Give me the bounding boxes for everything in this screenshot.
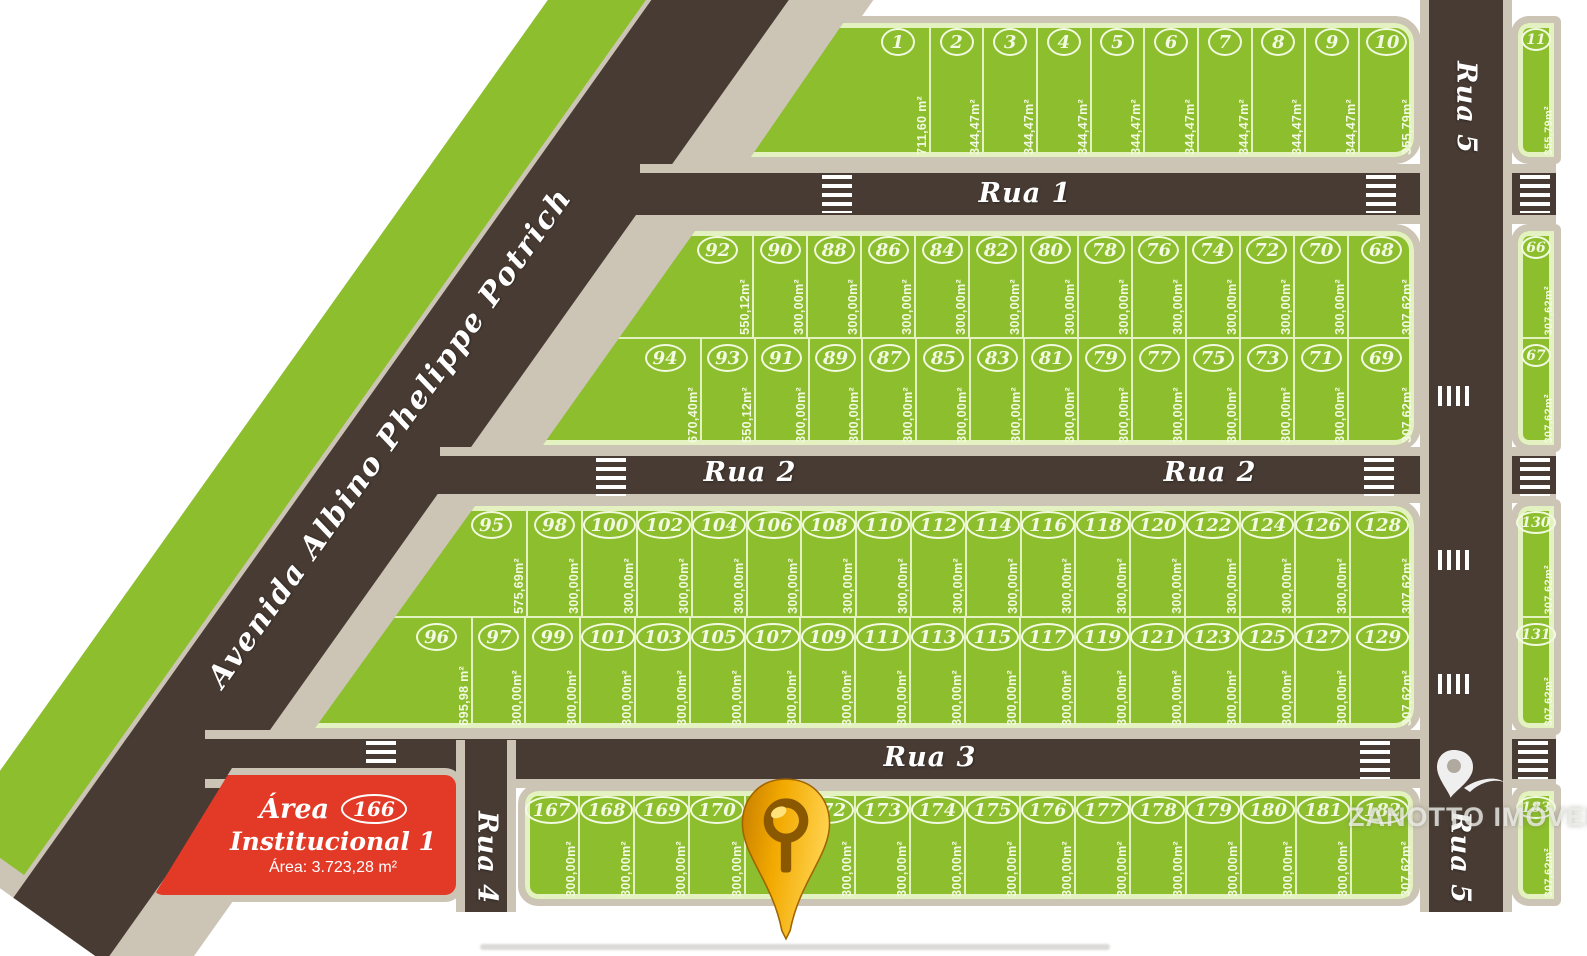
lot-7[interactable]: 7344,47m²	[1199, 23, 1253, 157]
lot-number-badge: 84	[922, 236, 963, 264]
lot-105[interactable]: 105300,00m²	[691, 618, 746, 728]
lot-area-label: 300,00m²	[1008, 279, 1022, 335]
lot-area-label: 300,00m²	[1063, 279, 1077, 335]
lot-number-badge: 77	[1139, 344, 1180, 372]
lot-number-badge: 128	[1356, 511, 1410, 539]
lot-area-label: 300,00m²	[955, 387, 969, 443]
lot-number-badge: 2	[940, 28, 974, 56]
junction-rua5-rua1	[1429, 173, 1503, 215]
lot-number-badge: 169	[635, 796, 689, 824]
lot-number-badge: 112	[912, 511, 966, 539]
lot-177[interactable]: 177300,00m²	[1076, 791, 1131, 899]
lot-area-label: 300,00m²	[840, 670, 854, 726]
lot-number-badge: 1	[881, 28, 915, 56]
lot-100[interactable]: 100300,00m²	[583, 506, 638, 616]
lot-area-label: 300,00m²	[1170, 558, 1184, 614]
lot-number-badge: 88	[814, 236, 855, 264]
lot-175[interactable]: 175300,00m²	[966, 791, 1021, 899]
lot-area-label: 307,62m²	[1543, 394, 1555, 444]
lot-area-label: 550,12m²	[738, 279, 752, 335]
lot-number-badge: 95	[471, 511, 512, 539]
lot-number-badge: 73	[1247, 344, 1288, 372]
lot-number-badge: 74	[1192, 236, 1233, 264]
lot-120[interactable]: 120300,00m²	[1131, 506, 1186, 616]
lot-number-badge: 5	[1100, 28, 1134, 56]
lot-128[interactable]: 128307,62m²	[1351, 506, 1414, 616]
lot-area-label: 300,00m²	[1115, 558, 1129, 614]
lot-number-badge: 118	[1076, 511, 1130, 539]
lot-119[interactable]: 119300,00m²	[1076, 618, 1131, 728]
lot-108[interactable]: 108300,00m²	[802, 506, 857, 616]
lot-72[interactable]: 72300,00m²	[1241, 231, 1295, 337]
lot-number-badge: 170	[690, 796, 744, 824]
lot-area-label: 300,00m²	[1225, 387, 1239, 443]
lot-area-label: 695,98 m²	[457, 666, 471, 726]
lot-86[interactable]: 86300,00m²	[862, 231, 916, 337]
lot-69[interactable]: 69307,62m²	[1349, 339, 1414, 445]
lot-area-label: 307,62m²	[1400, 558, 1414, 614]
lot-number-badge: 125	[1240, 623, 1294, 651]
lot-81[interactable]: 81300,00m²	[1025, 339, 1079, 445]
lot-number-badge: 9	[1315, 28, 1349, 56]
lot-113[interactable]: 113300,00m²	[911, 618, 966, 728]
lot-area-label: 300,00m²	[565, 670, 579, 726]
lot-area-label: 300,00m²	[1280, 670, 1294, 726]
lot-88[interactable]: 88300,00m²	[808, 231, 862, 337]
lot-number-badge: 66	[1521, 236, 1551, 259]
lot-area-label: 300,00m²	[1063, 387, 1077, 443]
lot-area-label: 711,60 m²	[915, 96, 929, 155]
lot-area-label: 300,00m²	[1333, 387, 1347, 443]
lot-number-badge: 166	[341, 794, 407, 824]
lot-169[interactable]: 169300,00m²	[635, 791, 690, 899]
lot-number-badge: 70	[1300, 236, 1341, 264]
lot-5[interactable]: 5344,47m²	[1092, 23, 1146, 157]
lot-area-label: 300,00m²	[1060, 558, 1074, 614]
lot-area-label: 300,00m²	[622, 558, 636, 614]
lot-126[interactable]: 126300,00m²	[1296, 506, 1351, 616]
lot-89[interactable]: 89300,00m²	[810, 339, 864, 445]
crosswalk	[1518, 741, 1548, 779]
lot-73[interactable]: 73300,00m²	[1241, 339, 1295, 445]
lot-6[interactable]: 6344,47m²	[1145, 23, 1199, 157]
lot-area-label: 300,00m²	[1336, 841, 1350, 897]
lot-number-badge: 96	[416, 623, 457, 651]
lot-area-label: 300,00m²	[901, 387, 915, 443]
lot-91[interactable]: 91300,00m²	[756, 339, 810, 445]
crosswalk	[596, 458, 626, 496]
scan-artifact	[480, 944, 1110, 950]
lot-number-badge: 4	[1047, 28, 1081, 56]
lot-number-badge: 3	[993, 28, 1027, 56]
lot-number-badge: 167	[525, 796, 579, 824]
lot-115[interactable]: 115300,00m²	[966, 618, 1021, 728]
lot-area-label: 344,47m²	[1237, 99, 1251, 155]
lot-number-badge: 122	[1186, 511, 1240, 539]
lot-area-label: 300,00m²	[954, 279, 968, 335]
block-lots-66-67: 66307,62m²67307,62m²	[1511, 224, 1561, 452]
lot-178[interactable]: 178300,00m²	[1131, 791, 1186, 899]
block-lots-130-131: 130307,62m²131307,62m²	[1511, 499, 1561, 735]
lot-104[interactable]: 104300,00m²	[693, 506, 748, 616]
lot-number-badge: 115	[966, 623, 1020, 651]
location-pin-marker[interactable]	[738, 775, 834, 941]
lot-129[interactable]: 129307,62m²	[1351, 618, 1415, 728]
lot-111[interactable]: 111300,00m²	[856, 618, 911, 728]
lot-number-badge: 123	[1185, 623, 1239, 651]
lot-area-label: 300,00m²	[950, 841, 964, 897]
institutional-area-subtitle: Institucional 1	[230, 827, 436, 856]
lot-area-label: 300,00m²	[1171, 387, 1185, 443]
lot-85[interactable]: 85300,00m²	[917, 339, 971, 445]
lot-area-label: 300,00m²	[1226, 841, 1240, 897]
lot-number-badge: 130	[1516, 511, 1555, 534]
lot-102[interactable]: 102300,00m²	[638, 506, 693, 616]
lot-number-badge: 173	[856, 796, 910, 824]
lot-area-label: 344,47m²	[1183, 99, 1197, 155]
lot-area-label: 300,00m²	[896, 558, 910, 614]
lot-11[interactable]: 11355,79m²	[1518, 23, 1554, 157]
lot-number-badge: 109	[801, 623, 855, 651]
institutional-area-title: Área	[259, 794, 329, 825]
lot-number-badge: 124	[1241, 511, 1295, 539]
lot-number-badge: 85	[923, 344, 964, 372]
lot-70[interactable]: 70300,00m²	[1295, 231, 1349, 337]
lot-area-label: 300,00m²	[1335, 670, 1349, 726]
lot-87[interactable]: 87300,00m²	[863, 339, 917, 445]
lot-82[interactable]: 82300,00m²	[970, 231, 1024, 337]
lot-number-badge: 87	[869, 344, 910, 372]
lot-number-badge: 127	[1295, 623, 1349, 651]
lot-area-label: 300,00m²	[1060, 841, 1074, 897]
lot-area-label: 300,00m²	[1117, 279, 1131, 335]
lot-116[interactable]: 116300,00m²	[1022, 506, 1077, 616]
crosswalk	[1520, 458, 1550, 496]
lot-area-label: 300,00m²	[1170, 670, 1184, 726]
lot-area-label: 300,00m²	[1225, 279, 1239, 335]
lot-3[interactable]: 3344,47m²	[984, 23, 1038, 157]
lot-167[interactable]: 167300,00m²	[525, 791, 580, 899]
crosswalk	[1366, 175, 1396, 213]
lot-area-label: 300,00m²	[1060, 670, 1074, 726]
lot-176[interactable]: 176300,00m²	[1021, 791, 1076, 899]
junction-avenue-rua1	[600, 173, 662, 215]
lot-area-label: 300,00m²	[895, 670, 909, 726]
lot-area-label: 300,00m²	[1171, 841, 1185, 897]
lot-area-label: 300,00m²	[841, 558, 855, 614]
lot-area-label: 300,00m²	[785, 670, 799, 726]
lot-area-label: 344,47m²	[1076, 99, 1090, 155]
lot-area-label: 550,12m²	[740, 387, 754, 443]
lot-93[interactable]: 93550,12m²	[702, 339, 756, 445]
lot-number-badge: 11	[1521, 28, 1551, 51]
lot-area-label: 300,00m²	[564, 841, 578, 897]
lot-124[interactable]: 124300,00m²	[1241, 506, 1296, 616]
lot-number-badge: 91	[761, 344, 802, 372]
lot-area-label: 300,00m²	[1171, 279, 1185, 335]
lot-179[interactable]: 179300,00m²	[1187, 791, 1242, 899]
lot-number-badge: 80	[1030, 236, 1071, 264]
lot-number-badge: 69	[1361, 344, 1402, 372]
lot-number-badge: 82	[976, 236, 1017, 264]
lot-number-badge: 8	[1261, 28, 1295, 56]
lot-number-badge: 94	[645, 344, 686, 372]
lot-112[interactable]: 112300,00m²	[912, 506, 967, 616]
lot-area-label: 300,00m²	[846, 279, 860, 335]
lot-4[interactable]: 4344,47m²	[1038, 23, 1092, 157]
lot-number-badge: 99	[532, 623, 573, 651]
lot-number-badge: 104	[692, 511, 746, 539]
lot-98[interactable]: 98300,00m²	[528, 506, 583, 616]
lot-area-label: 300,00m²	[1009, 387, 1023, 443]
watermark-pin-icon	[1420, 748, 1506, 806]
lot-area-label: 300,00m²	[1333, 279, 1347, 335]
lot-number-badge: 101	[581, 623, 635, 651]
lot-area-label: 300,00m²	[1279, 387, 1293, 443]
lot-number-badge: 107	[746, 623, 800, 651]
lot-number-badge: 71	[1301, 344, 1342, 372]
junction-avenue-rua2	[395, 456, 463, 494]
lot-174[interactable]: 174300,00m²	[911, 791, 966, 899]
lot-number-badge: 114	[966, 511, 1020, 539]
lot-area-label: 344,47m²	[968, 99, 982, 155]
lot-area-label: 300,00m²	[794, 387, 808, 443]
lot-121[interactable]: 121300,00m²	[1131, 618, 1186, 728]
lot-area-label: 307,62m²	[1400, 670, 1414, 726]
lot-67[interactable]: 67307,62m²	[1518, 337, 1554, 445]
watermark-brand: ZANOTTO IMÓVEIS	[1348, 802, 1587, 833]
lot-area-label: 344,47m²	[1290, 99, 1304, 155]
lot-area-label: 300,00m²	[1117, 387, 1131, 443]
lot-2[interactable]: 2344,47m²	[931, 23, 985, 157]
lot-number-badge: 92	[697, 236, 738, 264]
lot-number-badge: 121	[1130, 623, 1184, 651]
subdivision-map: 1711,60 m²2344,47m²3344,47m²4344,47m²534…	[0, 0, 1587, 956]
lot-number-badge: 176	[1021, 796, 1075, 824]
lot-number-badge: 6	[1154, 28, 1188, 56]
lot-area-label: 575,69m²	[512, 558, 526, 614]
lot-number-badge: 106	[747, 511, 801, 539]
institutional-area-size: Área: 3.723,28 m²	[269, 859, 397, 877]
street-rua1	[640, 164, 1556, 224]
lot-180[interactable]: 180300,00m²	[1242, 791, 1297, 899]
lot-area-label: 300,00m²	[567, 558, 581, 614]
lot-74[interactable]: 74300,00m²	[1187, 231, 1241, 337]
lot-area-label: 300,00m²	[1225, 670, 1239, 726]
crosswalk	[1438, 550, 1474, 570]
lot-78[interactable]: 78300,00m²	[1079, 231, 1133, 337]
lot-area-label: 300,00m²	[1115, 670, 1129, 726]
lot-106[interactable]: 106300,00m²	[748, 506, 803, 616]
lot-66[interactable]: 66307,62m²	[1518, 231, 1554, 337]
crosswalk	[1438, 674, 1474, 694]
lot-109[interactable]: 109300,00m²	[801, 618, 856, 728]
lot-122[interactable]: 122300,00m²	[1186, 506, 1241, 616]
lot-103[interactable]: 103300,00m²	[636, 618, 691, 728]
lot-area-label: 300,00m²	[900, 279, 914, 335]
junction-rua4-rua3	[465, 739, 507, 779]
lot-123[interactable]: 123300,00m²	[1186, 618, 1241, 728]
lot-area-label: 300,00m²	[730, 670, 744, 726]
lot-area-label: 307,62m²	[1543, 565, 1555, 615]
lot-number-badge: 179	[1186, 796, 1240, 824]
lot-area-label: 344,47m²	[1022, 99, 1036, 155]
lot-101[interactable]: 101300,00m²	[581, 618, 636, 728]
lot-125[interactable]: 125300,00m²	[1241, 618, 1296, 728]
lot-127[interactable]: 127300,00m²	[1296, 618, 1351, 728]
lot-131[interactable]: 131307,62m²	[1518, 616, 1554, 728]
lot-area-label: 300,00m²	[1006, 558, 1020, 614]
lot-area-label: 344,47m²	[1344, 99, 1358, 155]
lot-number-badge: 75	[1193, 344, 1234, 372]
lot-68[interactable]: 68307,62m²	[1349, 231, 1414, 337]
lot-number-badge: 100	[583, 511, 637, 539]
lot-area-label: 300,00m²	[1279, 279, 1293, 335]
lot-110[interactable]: 110300,00m²	[857, 506, 912, 616]
lot-130[interactable]: 130307,62m²	[1518, 506, 1554, 616]
lot-area-label: 307,62m²	[1400, 387, 1414, 443]
lot-number-badge: 116	[1021, 511, 1075, 539]
lot-168[interactable]: 168300,00m²	[580, 791, 635, 899]
lot-117[interactable]: 117300,00m²	[1021, 618, 1076, 728]
lot-number-badge: 86	[868, 236, 909, 264]
lot-area-label: 300,00m²	[675, 670, 689, 726]
lot-number-badge: 177	[1076, 796, 1130, 824]
lot-area-label: 300,00m²	[510, 670, 524, 726]
lot-area-label: 300,00m²	[792, 279, 806, 335]
lot-77[interactable]: 77300,00m²	[1133, 339, 1187, 445]
lot-9[interactable]: 9344,47m²	[1306, 23, 1360, 157]
lot-80[interactable]: 80300,00m²	[1024, 231, 1078, 337]
lot-area-label: 300,00m²	[895, 841, 909, 897]
lot-number-badge: 117	[1021, 623, 1075, 651]
lot-181[interactable]: 181300,00m²	[1297, 791, 1352, 899]
lot-83[interactable]: 83300,00m²	[971, 339, 1025, 445]
lot-area-label: 300,00m²	[1280, 558, 1294, 614]
lot-number-badge: 93	[707, 344, 748, 372]
lot-number-badge: 110	[857, 511, 911, 539]
lot-76[interactable]: 76300,00m²	[1133, 231, 1187, 337]
lot-area-label: 355,79m²	[1543, 106, 1555, 156]
lot-number-badge: 97	[478, 623, 519, 651]
lot-75[interactable]: 75300,00m²	[1187, 339, 1241, 445]
lot-area-label: 300,00m²	[1115, 841, 1129, 897]
lot-area-label: 300,00m²	[620, 670, 634, 726]
lot-number-badge: 81	[1031, 344, 1072, 372]
lot-71[interactable]: 71300,00m²	[1295, 339, 1349, 445]
crosswalk	[1520, 175, 1550, 213]
lot-number-badge: 180	[1241, 796, 1295, 824]
lot-number-badge: 90	[760, 236, 801, 264]
lot-number-badge: 67	[1521, 344, 1551, 367]
lot-number-badge: 126	[1295, 511, 1349, 539]
lot-99[interactable]: 99300,00m²	[526, 618, 581, 728]
lot-number-badge: 76	[1138, 236, 1179, 264]
lot-number-badge: 120	[1131, 511, 1185, 539]
block-lot-11: 11355,79m²	[1511, 16, 1561, 164]
lot-area-label: 300,00m²	[840, 841, 854, 897]
lot-number-badge: 108	[802, 511, 856, 539]
lot-number-badge: 168	[580, 796, 634, 824]
lot-area-label: 307,62m²	[1543, 286, 1555, 336]
lot-114[interactable]: 114300,00m²	[967, 506, 1022, 616]
lot-number-badge: 98	[534, 511, 575, 539]
lot-area-label: 344,47m²	[1129, 99, 1143, 155]
lot-area-label: 300,00m²	[1005, 841, 1019, 897]
lot-area-label: 307,62m²	[1400, 279, 1414, 335]
junction-rua5-rua2	[1429, 456, 1503, 494]
lot-area-label: 355,79m²	[1400, 99, 1414, 155]
lot-number-badge: 72	[1246, 236, 1287, 264]
lot-area-label: 300,00m²	[677, 558, 691, 614]
lot-number-badge: 89	[815, 344, 856, 372]
lot-number-badge: 129	[1356, 623, 1410, 651]
lot-97[interactable]: 97300,00m²	[473, 618, 526, 728]
lot-number-badge: 111	[856, 623, 910, 651]
crosswalk	[1438, 386, 1474, 406]
lot-number-badge: 181	[1297, 796, 1351, 824]
lot-number-badge: 79	[1085, 344, 1126, 372]
lot-number-badge: 178	[1131, 796, 1185, 824]
lot-area-label: 300,00m²	[847, 387, 861, 443]
crosswalk	[1360, 741, 1390, 779]
lot-number-badge: 83	[977, 344, 1018, 372]
lot-number-badge: 7	[1208, 28, 1242, 56]
lot-number-badge: 102	[637, 511, 691, 539]
lot-number-badge: 10	[1366, 28, 1407, 56]
lot-area-label: 300,00m²	[1005, 670, 1019, 726]
lot-area-label: 300,00m²	[1281, 841, 1295, 897]
lot-number-badge: 113	[911, 623, 965, 651]
lot-number-badge: 119	[1076, 623, 1130, 651]
crosswalk	[822, 175, 852, 213]
crosswalk	[1364, 458, 1394, 496]
lot-118[interactable]: 118300,00m²	[1076, 506, 1131, 616]
lot-area-label: 300,00m²	[1335, 558, 1349, 614]
lot-number-badge: 103	[636, 623, 690, 651]
lot-10[interactable]: 10355,79m²	[1360, 23, 1414, 157]
lot-79[interactable]: 79300,00m²	[1079, 339, 1133, 445]
lot-number-badge: 175	[966, 796, 1020, 824]
lot-area-label: 300,00m²	[1225, 558, 1239, 614]
lot-173[interactable]: 173300,00m²	[856, 791, 911, 899]
lot-area-label: 300,00m²	[619, 841, 633, 897]
lot-number-badge: 78	[1084, 236, 1125, 264]
lot-area-label: 300,00m²	[732, 558, 746, 614]
block-lots-167-182: 167300,00m²168300,00m²169300,00m²170300,…	[518, 784, 1420, 906]
lot-area-label: 670,40m²	[686, 387, 700, 443]
lot-8[interactable]: 8344,47m²	[1253, 23, 1307, 157]
lot-area-label: 307,62m²	[1399, 841, 1413, 897]
lot-area-label: 300,00m²	[786, 558, 800, 614]
lot-area-label: 300,00m²	[950, 670, 964, 726]
lot-90[interactable]: 90300,00m²	[754, 231, 808, 337]
lot-number-badge: 131	[1516, 623, 1555, 646]
lot-area-label: 307,62m²	[1543, 677, 1555, 727]
lot-number-badge: 174	[911, 796, 965, 824]
lot-107[interactable]: 107300,00m²	[746, 618, 801, 728]
lot-number-badge: 105	[691, 623, 745, 651]
lot-84[interactable]: 84300,00m²	[916, 231, 970, 337]
lot-area-label: 300,00m²	[674, 841, 688, 897]
lot-area-label: 300,00m²	[951, 558, 965, 614]
lot-number-badge: 68	[1361, 236, 1402, 264]
lot-area-label: 307,62m²	[1543, 848, 1555, 898]
